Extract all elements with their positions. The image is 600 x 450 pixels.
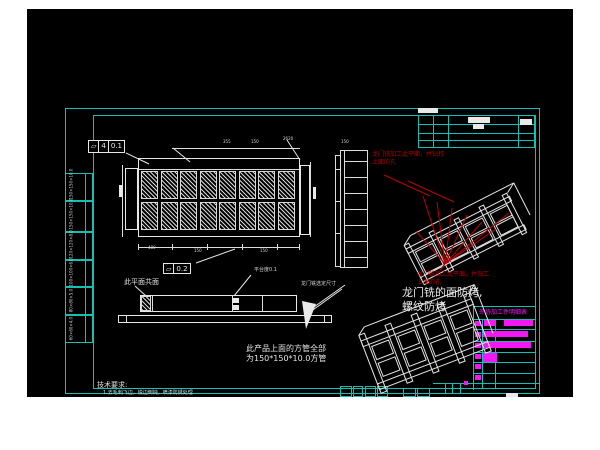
red-leader-lines — [384, 175, 509, 270]
red-note-top: 龙门铣加工此平面，并钻打 上面的孔 — [372, 151, 444, 167]
coplanar-note: 此平面共面 — [124, 277, 159, 287]
square-tube-note: 此产品上面的方管全部 为150*150*10.0方管 — [246, 344, 326, 364]
bake-protection-note: 龙门铣的面防烤, 螺纹防烤 — [402, 286, 483, 314]
bom-table-header: 外协加工件明细表 — [479, 309, 527, 316]
tech-requirements-item: 1.去毛刺飞边，锐边倒钝，喷漆防锈处理 — [103, 390, 193, 396]
page: 3551502620480150150150150×150×10.0150×15… — [0, 0, 600, 450]
red-note-bottom: 龙门铣加工此平面，并加工 上面的孔 — [417, 271, 489, 287]
linework-overlay — [27, 9, 573, 397]
gantry-mill-dim-note: 龙门铣选定尺寸 — [301, 281, 336, 287]
iso-view-top — [401, 183, 536, 285]
tech-requirements-title: 技术要求: — [97, 380, 127, 390]
section-arrow — [302, 301, 316, 329]
cad-viewport: 3551502620480150150150150×150×10.0150×15… — [27, 9, 573, 397]
platform-flatness-note: 平台度0.1 — [254, 267, 277, 273]
